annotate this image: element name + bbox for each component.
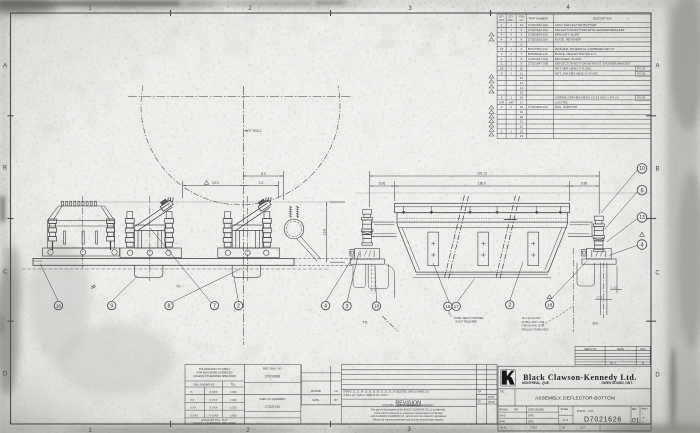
svg-text:SCREW, CAP HEX HEAD 1/2-13 UNC: SCREW, CAP HEX HEAD 1/2-13 UNC x 3/4 LG <box>555 96 619 100</box>
svg-text:A: A <box>3 64 7 70</box>
svg-text:DIM. SHOWN AS: DIM. SHOWN AS <box>194 382 215 386</box>
svg-text:13.8: 13.8 <box>323 229 327 236</box>
svg-text:7.0: 7.0 <box>259 181 264 185</box>
svg-text:RA: RA <box>478 391 482 394</box>
svg-text:RETAINER, BLADE: RETAINER, BLADE <box>555 57 581 61</box>
svg-text:LOCTITE: LOCTITE <box>555 100 568 104</box>
svg-text:BRACKET, SLIDE: BRACKET, SLIDE <box>555 33 579 37</box>
svg-text:2: 2 <box>237 303 240 309</box>
svg-text:MONTREAL, QUE.: MONTREAL, QUE. <box>522 381 550 385</box>
svg-text:TS: TS <box>363 321 368 325</box>
svg-text:HS 50: HS 50 <box>637 67 646 71</box>
svg-text:B7600046-125: B7600046-125 <box>528 52 548 56</box>
svg-text:USED ON ASSEMBLY: USED ON ASSEMBLY <box>259 397 286 401</box>
svg-text:01: 01 <box>632 417 640 424</box>
svg-text:5.56: 5.56 <box>379 181 386 185</box>
svg-text:1=4: 1=4 <box>563 418 569 422</box>
svg-text:A/R: A/R <box>499 100 505 104</box>
svg-text:±.020: ±.020 <box>230 398 237 402</box>
svg-text:X.X: X.X <box>190 398 195 402</box>
svg-text:LH: LH <box>334 389 337 393</box>
svg-text:IS NOT REQUIRED: IS NOT REQUIRED <box>455 320 477 323</box>
svg-text:13.0: 13.0 <box>212 181 219 185</box>
svg-text:16: 16 <box>445 304 451 309</box>
svg-text:4: 4 <box>640 243 643 249</box>
svg-text:PLATE, RETAINER: PLATE, RETAINER <box>555 38 582 42</box>
svg-text:18: 18 <box>56 303 62 308</box>
svg-text:ITEM 18 AND 19 AS: ITEM 18 AND 19 AS <box>522 325 545 328</box>
svg-text:10: 10 <box>639 166 645 172</box>
svg-text:D7019086: D7019086 <box>265 374 280 378</box>
svg-text:D: D <box>655 373 660 379</box>
svg-text:24: 24 <box>520 134 524 138</box>
svg-text:ASSY, DEFLECTOR-BOTTOM: ASSY, DEFLECTOR-BOTTOM <box>555 23 597 27</box>
svg-text:17: 17 <box>454 304 460 309</box>
svg-text:16: 16 <box>520 96 524 100</box>
svg-text:No.: No. <box>519 19 523 22</box>
svg-text:23: 23 <box>520 129 524 133</box>
svg-text:WASHER, SPHERICAL-COMBINED SET: WASHER, SPHERICAL-COMBINED SET #7 <box>555 47 615 51</box>
svg-text:DRAWN: DRAWN <box>499 409 508 412</box>
svg-text:ITEM 4 QTY WAS 2, ITEM 16 QTY: ITEM 4 QTY WAS 2, ITEM 16 QTY WAS 7 <box>344 394 390 397</box>
svg-text:1127: 1127 <box>580 428 586 430</box>
svg-text:16: 16 <box>500 47 504 51</box>
svg-text:X.XXX: X.XXX <box>190 413 198 417</box>
svg-text:PART NUMBER: PART NUMBER <box>529 17 548 21</box>
svg-text:RA: RA <box>562 427 566 430</box>
svg-text:06/11/98: 06/11/98 <box>311 389 321 393</box>
svg-text:2: 2 <box>508 303 511 309</box>
svg-text:5.56: 5.56 <box>581 181 588 185</box>
svg-text:UNLESS OTHERWISE SPECIFIED: UNLESS OTHERWISE SPECIFIED <box>193 374 236 378</box>
svg-text:APPD: APPD <box>488 396 495 399</box>
svg-text:X.XXX: X.XXX <box>210 398 218 402</box>
svg-text:SCALE: SCALE <box>561 408 569 411</box>
svg-text:REV: REV <box>641 347 647 351</box>
svg-text:17: 17 <box>520 100 524 104</box>
svg-text:C7021547-01A: C7021547-01A <box>528 57 548 61</box>
svg-text:REF. DWG. NO.: REF. DWG. NO. <box>263 367 283 371</box>
svg-text:18: 18 <box>520 105 524 109</box>
svg-text:10: 10 <box>520 67 524 71</box>
svg-text:C: C <box>655 271 660 277</box>
svg-text:C7021700: C7021700 <box>265 405 280 409</box>
svg-text:C7021635-01A: C7021635-01A <box>528 38 548 42</box>
svg-text:BLADE, DEFLECTOR WA 2 x7: BLADE, DEFLECTOR WA 2 x7 <box>555 52 597 56</box>
svg-text:SEPIA TO: SEPIA TO <box>584 347 596 351</box>
svg-text:TOLERANCES TO APPLY: TOLERANCES TO APPLY <box>199 367 231 371</box>
svg-text:18: 18 <box>374 304 380 309</box>
svg-text:RAIL, SUPPORT: RAIL, SUPPORT <box>555 105 578 109</box>
svg-text:±.005: ±.005 <box>230 413 237 417</box>
svg-text:7: 7 <box>213 303 216 309</box>
svg-text:C: C <box>3 270 8 276</box>
svg-text:C7021626-01A: C7021626-01A <box>528 23 548 27</box>
svg-text:X.XX: X.XX <box>190 406 196 410</box>
svg-text:C7021626-01A: C7021626-01A <box>528 105 548 109</box>
svg-text:D7021626: D7021626 <box>584 417 622 424</box>
svg-text:OWEN SOUND, ONT.: OWEN SOUND, ONT. <box>601 381 632 385</box>
svg-text:CHKD: CHKD <box>499 416 506 418</box>
svg-text:X.XXXX: X.XXXX <box>209 413 219 417</box>
svg-text:13: 13 <box>639 215 645 221</box>
svg-text:2.72: 2.72 <box>597 296 603 300</box>
svg-text:20: 20 <box>520 115 524 119</box>
svg-text:16: 16 <box>500 67 504 71</box>
svg-text:NUT, HEX HEAD 1"-8 UNC: NUT, HEX HEAD 1"-8 UNC <box>555 67 592 71</box>
svg-text:DESCRIPTION: DESCRIPTION <box>593 17 611 21</box>
svg-text:HS 50: HS 50 <box>637 71 646 75</box>
svg-text:1.12: 1.12 <box>611 285 617 289</box>
svg-text:18 X 1/2-13 UNC: 18 X 1/2-13 UNC <box>522 317 541 320</box>
svg-text:X.XXX: X.XXX <box>210 406 218 410</box>
svg-text:BY: BY <box>334 398 338 402</box>
svg-text:15: 15 <box>520 91 524 95</box>
svg-text:A: A <box>655 64 659 70</box>
svg-text:BY: BY <box>478 401 482 403</box>
svg-text:MATL.: MATL. <box>508 19 515 22</box>
svg-text:8: 8 <box>168 303 171 309</box>
svg-text:CHKD: CHKD <box>488 402 495 404</box>
svg-text:NUT, JAM HEX HEAD 1"-8 UNC: NUT, JAM HEX HEAD 1"-8 UNC <box>555 71 599 75</box>
svg-text:B: B <box>3 166 7 172</box>
svg-text:REV: REV <box>632 409 637 411</box>
svg-text:19: 19 <box>520 110 524 114</box>
svg-text:TRL: TRL <box>500 391 505 393</box>
svg-text:C7021634-01A: C7021634-01A <box>528 33 548 37</box>
svg-text:14: 14 <box>520 86 524 90</box>
svg-text:X.: X. <box>190 390 193 394</box>
svg-text:C7061: C7061 <box>530 428 537 430</box>
svg-text:AT WILL ASSY, USE: AT WILL ASSY, USE <box>522 321 545 324</box>
svg-text:DATE: DATE <box>312 398 319 402</box>
svg-text:DWG. NO.: DWG. NO. <box>577 409 595 413</box>
svg-text:DATE 06/10/98: DATE 06/10/98 <box>528 409 544 412</box>
svg-text:6: 6 <box>640 188 643 194</box>
svg-text:FOR MACHINED SURFACES: FOR MACHINED SURFACES <box>197 371 233 375</box>
svg-text:TS: TS <box>176 285 181 289</box>
svg-text:RAT: RAT <box>514 409 519 412</box>
svg-text:SHEET: SHEET <box>641 409 648 411</box>
svg-text:DEFLECTOR-BOTTOM WITH SHOWER B: DEFLECTOR-BOTTOM WITH SHOWER BRACKET <box>555 28 625 32</box>
svg-text:A/R: A/R <box>509 100 515 104</box>
svg-text:21: 21 <box>520 120 524 124</box>
svg-text:CAD DWG. - NOT TO BE REVISED M: CAD DWG. - NOT TO BE REVISED MANUALLY <box>382 404 434 407</box>
svg-text:8.0: 8.0 <box>261 172 266 176</box>
svg-text:13: 13 <box>520 81 524 85</box>
svg-text:UNLESS OTHERWISE SPECIFIED: UNLESS OTHERWISE SPECIFIED <box>193 421 236 425</box>
svg-text:without our express permission: without our express permission and is to… <box>373 418 444 421</box>
svg-text:X.XXX: X.XXX <box>210 390 218 394</box>
svg-text:±.010: ±.010 <box>230 406 237 410</box>
svg-text:“C” ROLL: “C” ROLL <box>248 129 262 133</box>
svg-text:DATE: DATE <box>617 347 624 351</box>
svg-text:HS 50: HS 50 <box>637 96 646 100</box>
svg-text:11: 11 <box>520 71 523 75</box>
svg-text:180.0: 180.0 <box>478 181 486 185</box>
svg-text:DEFLECTOR-BOTTOM WITHOUT SHOWE: DEFLECTOR-BOTTOM WITHOUT SHOWER BRACKET <box>555 62 631 66</box>
svg-text:DS: DS <box>593 322 599 326</box>
svg-text:DATE: DATE <box>528 415 534 418</box>
svg-text:12: 12 <box>520 76 524 80</box>
svg-text:±.040: ±.040 <box>230 390 237 394</box>
svg-text:1A: 1A <box>520 23 524 27</box>
svg-text:APPD: APPD <box>499 421 506 424</box>
svg-text:B: B <box>655 167 659 173</box>
svg-text:C7021647-01A: C7021647-01A <box>528 28 548 32</box>
svg-text:B7017802-01A: B7017802-01A <box>528 47 548 51</box>
svg-text:TOL.: TOL. <box>230 382 236 386</box>
svg-text:3: 3 <box>346 304 349 310</box>
svg-text:UNT.: UNT. <box>499 19 505 22</box>
svg-text:191.12: 191.12 <box>477 172 487 176</box>
svg-text:18: 18 <box>547 302 553 307</box>
svg-text:C7021647-01B: C7021647-01B <box>528 62 548 66</box>
svg-text:AN AL.: AN AL. <box>500 427 508 430</box>
svg-text:4: 4 <box>324 303 327 309</box>
svg-text:9: 9 <box>110 303 113 309</box>
svg-text:D: D <box>3 372 8 378</box>
svg-text:DATE: DATE <box>528 421 534 424</box>
svg-text:22: 22 <box>520 124 524 128</box>
svg-text:NO. 1: NO. 1 <box>610 363 617 365</box>
svg-text:DRILLING TEMPLATES: DRILLING TEMPLATES <box>522 328 549 331</box>
svg-text:ASSEMBLY, DEFLECTOR-BOTTOM: ASSEMBLY, DEFLECTOR-BOTTOM <box>535 396 615 402</box>
